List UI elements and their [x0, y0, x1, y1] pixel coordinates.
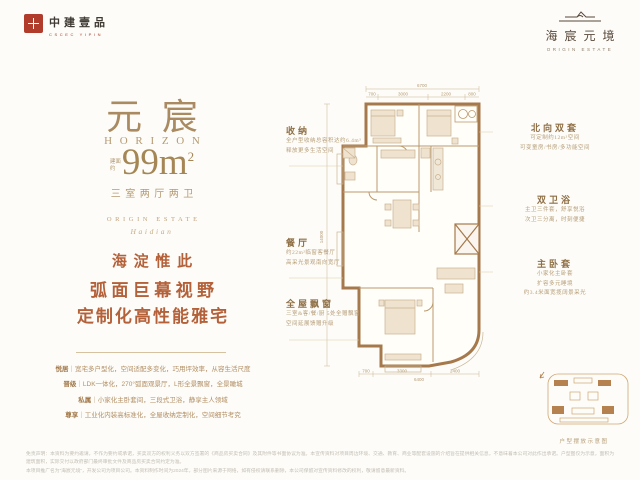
annotation-storage: 收纳 全户型收纳总容积达约6.4m³ 释放更多生活空间 — [286, 124, 398, 156]
svg-text:800: 800 — [468, 92, 476, 97]
keyplan: 户型摆放示意图 — [534, 368, 634, 445]
svg-text:2200: 2200 — [441, 92, 452, 97]
slogan-1: 海淀惟此 — [52, 250, 252, 271]
cscec-seal-logo — [24, 14, 43, 33]
area-sup: 2 — [188, 149, 195, 165]
slogan-3: 定制化高性能雅宅 — [52, 302, 252, 327]
brand-right-name: 海宸元境 — [532, 27, 628, 44]
annotation-dining: 餐厅 约22m²临窗客餐厅 高采光景观南向宽厅 — [286, 236, 398, 268]
feature-item: 悦居｜宽宅多户型化，空间适配多变化，巧用坪效率，从容生活尺度 — [50, 362, 256, 377]
unit-layout: 三室两厅两卫 — [52, 185, 252, 200]
disclaimer-line-1: 免责声明：本资料为要约邀请，不作为要约或承诺，买卖双方的权利义务以双方签署的《商… — [26, 451, 614, 468]
estate-roof-icon — [555, 8, 605, 24]
area-prefix: 建面约 — [110, 159, 122, 174]
annotation-master-suite: 主卧套 小家化主卧套 扩容多元睡境 约3.4米面宽揽阔景采光 — [494, 257, 616, 299]
area-value: 99m — [122, 144, 188, 181]
annotation-double-bath: 双卫浴 主卫三件套，舒享悦浴 次卫三分离，时刻便捷 — [494, 193, 616, 225]
slogan-2: 弧面巨幕视野 — [52, 276, 252, 301]
svg-text:3000: 3000 — [398, 92, 409, 97]
feature-item: 私属｜小家化主卧套间，三段式卫浴，静享主人领域 — [50, 393, 256, 408]
brand-left-sub: CSCEC YIPIN — [49, 32, 109, 37]
svg-text:6700: 6700 — [417, 83, 428, 88]
feature-item: 尊享｜工业化内装高标准化，全屋收纳定制化，空间细节考究 — [50, 408, 256, 423]
disclaimer-line-2: 本项目推广名为“海宸元境”，开发公司为项目公司。本资料制作时间为2024年，部分… — [26, 468, 614, 476]
keyplan-diagram — [534, 368, 634, 430]
estate-caps: ORIGIN ESTATE — [52, 216, 252, 223]
annotation-baywindows: 全屋飘窗 三室&客/餐/厨 5处全赠飘窗 空间延展馈赠升级 — [286, 297, 398, 329]
gold-divider — [76, 352, 226, 353]
annotation-north-suites: 北向双套 可定制约12m²空间 可变童房/书房/多功能空间 — [494, 121, 616, 153]
footer-disclaimer: 免责声明：本资料为要约邀请，不作为要约或承诺，买卖双方的权利义务以双方签署的《商… — [26, 451, 614, 476]
svg-text:700: 700 — [368, 92, 376, 97]
feature-list: 悦居｜宽宅多户型化，空间适配多变化，巧用坪效率，从容生活尺度 晋级｜LDK一体化… — [50, 362, 256, 423]
svg-text:2400: 2400 — [450, 369, 461, 374]
unit-title: 元宸 — [52, 88, 252, 140]
svg-text:6400: 6400 — [414, 377, 425, 382]
estate-script: Haidian — [52, 227, 252, 236]
brand-right-sub: ORIGIN ESTATE — [532, 47, 628, 52]
feature-item: 晋级｜LDK一体化，270°弧面观景厅，L形全景飘窗，全景瞰城 — [50, 377, 256, 392]
brand-right: 海宸元境 ORIGIN ESTATE — [532, 8, 628, 52]
brand-left: 中建壹品 CSCEC YIPIN — [49, 14, 109, 37]
svg-text:700: 700 — [362, 369, 370, 374]
elevator-shaft — [455, 224, 479, 254]
svg-text:3300: 3300 — [397, 369, 408, 374]
north-arrow-icon — [540, 372, 544, 378]
keyplan-caption: 户型摆放示意图 — [534, 437, 634, 445]
unit-area: 建面约 99m 2 — [52, 144, 252, 181]
brand-left-name: 中建壹品 — [49, 14, 109, 30]
